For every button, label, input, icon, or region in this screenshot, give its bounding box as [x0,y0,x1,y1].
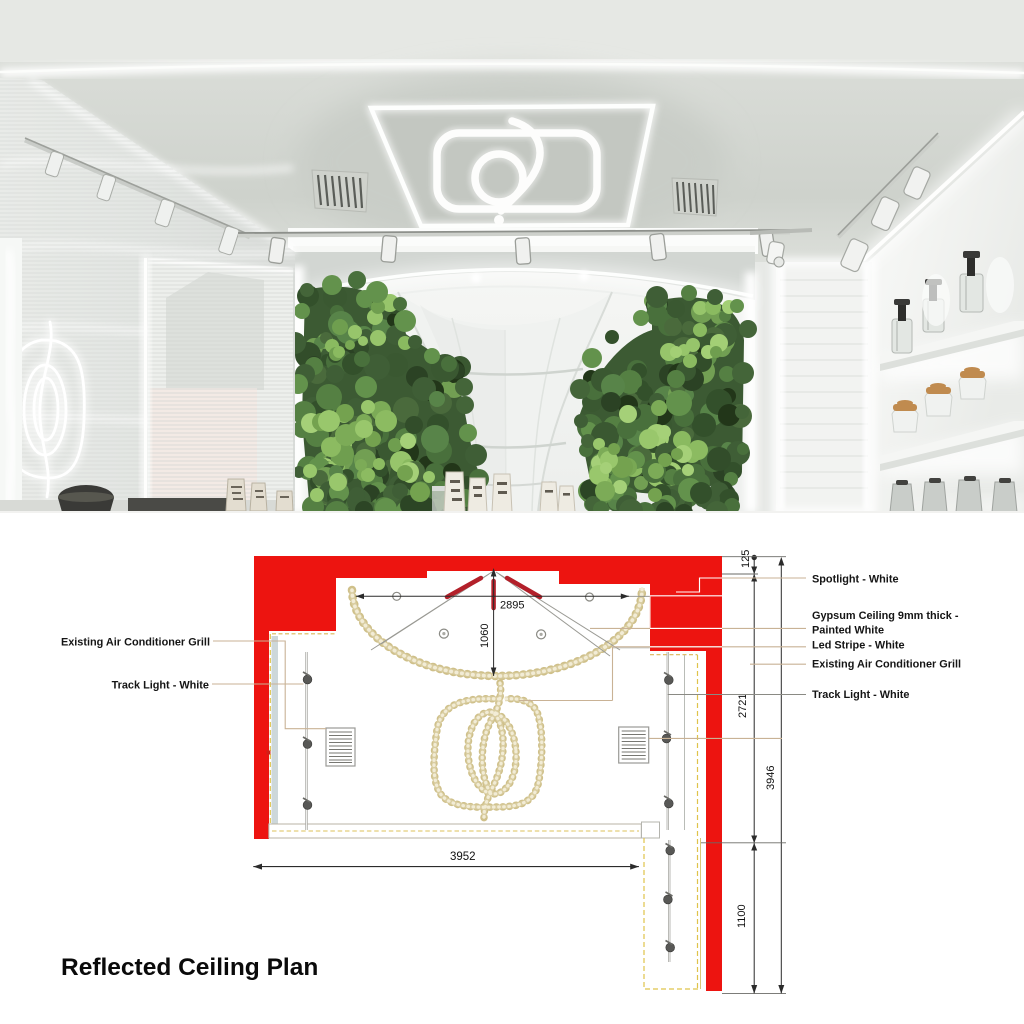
svg-text:Track Light - White: Track Light - White [112,680,209,692]
svg-text:1100: 1100 [736,904,748,928]
svg-text:3946: 3946 [765,766,777,790]
svg-text:125: 125 [740,550,752,568]
svg-text:Existing Air Conditioner Grill: Existing Air Conditioner Grill [812,659,961,671]
svg-text:2721: 2721 [737,694,749,718]
svg-text:1060: 1060 [479,624,491,648]
svg-text:Existing Air Conditioner Grill: Existing Air Conditioner Grill [61,637,210,649]
svg-text:Gypsum Ceiling 9mm thick -: Gypsum Ceiling 9mm thick - [812,610,959,622]
svg-text:Led Stripe - White: Led Stripe - White [812,640,905,652]
svg-text:2895: 2895 [500,600,524,612]
svg-text:Reflected Ceiling Plan: Reflected Ceiling Plan [61,954,318,981]
svg-text:Painted White: Painted White [812,625,884,637]
svg-text:Track Light - White: Track Light - White [812,689,909,701]
svg-text:3952: 3952 [450,851,476,863]
svg-text:Spotlight - White: Spotlight - White [812,574,899,586]
